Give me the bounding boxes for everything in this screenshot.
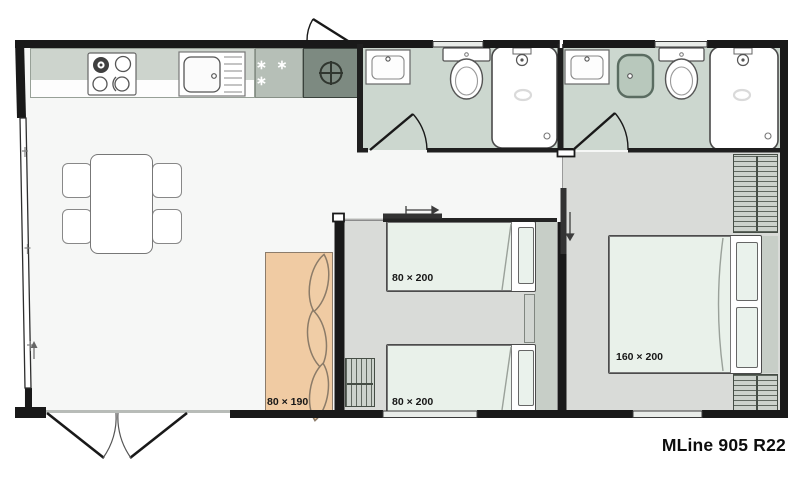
sofa-size-label: 80 × 190 <box>267 396 308 408</box>
exterior-walls <box>15 40 788 418</box>
washbasin-icon <box>565 50 609 84</box>
door-sill <box>46 410 230 413</box>
sofa-cushions-icon <box>304 253 333 422</box>
window-icon <box>20 118 31 388</box>
wall-seam <box>560 40 562 48</box>
basin-icon <box>618 55 653 97</box>
washbasin-icon <box>366 50 410 84</box>
shower-icon <box>710 47 778 150</box>
toilet-icon <box>443 48 490 99</box>
door-stop <box>333 150 575 222</box>
floor-plan: ∗ ∗ ∗ <box>0 0 800 480</box>
sink-icon <box>179 52 245 96</box>
water-heater-symbol-icon <box>319 61 343 85</box>
toilet-icon <box>659 48 704 99</box>
sliding-door-icon <box>383 153 574 254</box>
plan-linework <box>0 0 800 480</box>
model-title: MLine 905 R22 <box>662 435 786 456</box>
single-bed-bottom-size-label: 80 × 200 <box>392 396 433 408</box>
shower-icon <box>492 47 557 148</box>
stove-icon <box>88 53 136 95</box>
bed-fold-lines <box>502 224 723 410</box>
double-bed-size-label: 160 × 200 <box>616 351 663 363</box>
single-bed-top-size-label: 80 × 200 <box>392 272 433 284</box>
